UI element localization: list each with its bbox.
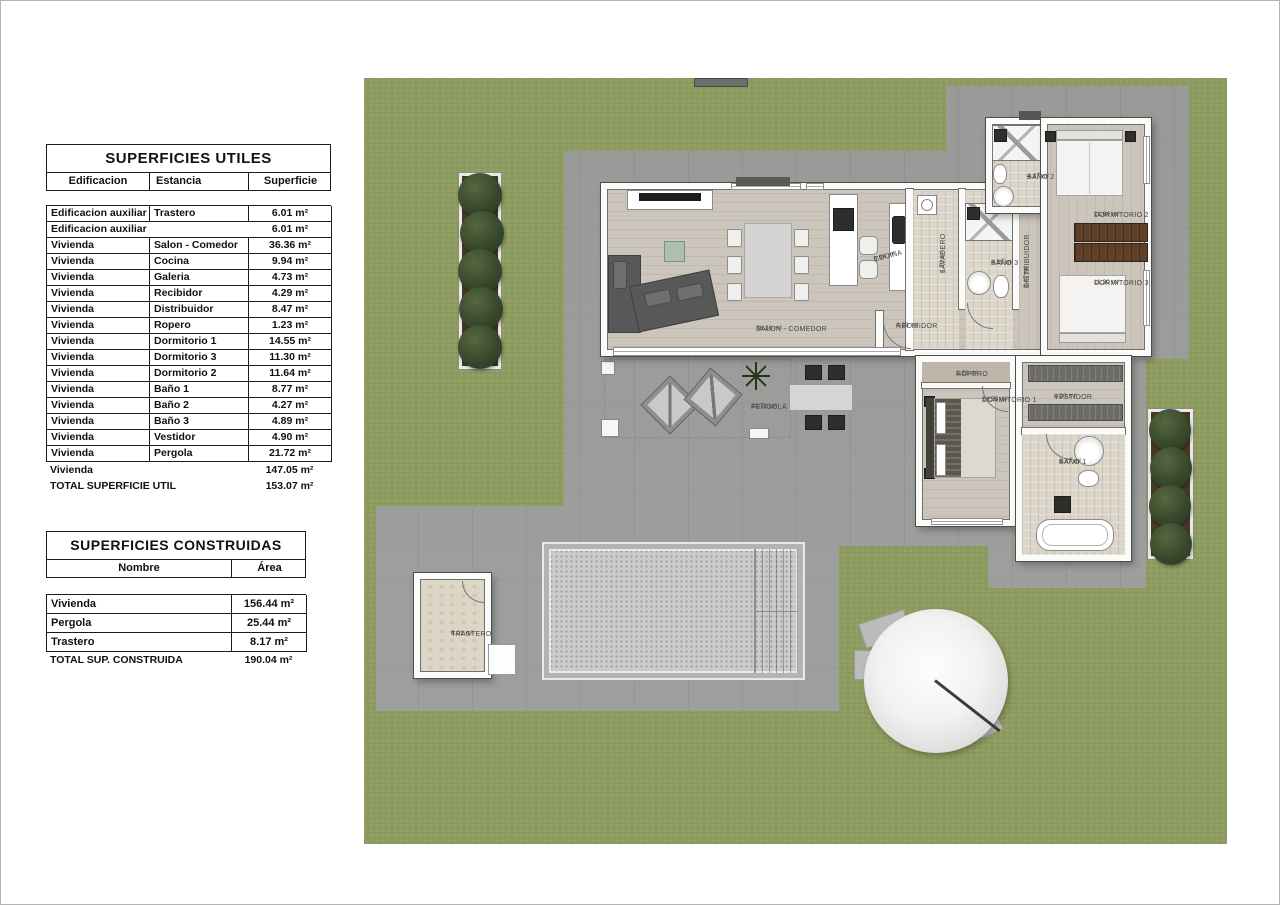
outdoor-chair: [805, 365, 822, 380]
col-header-nombre: Nombre: [47, 560, 232, 577]
window: [1143, 136, 1150, 184]
table-cell: 8.17 m²: [232, 633, 307, 652]
table-cell: Edificacion auxiliar: [47, 222, 150, 238]
table-cell: Baño 1: [150, 382, 249, 398]
outdoor-chair: [805, 415, 822, 430]
utiles-subtotal-row: Vivienda 147.05 m²: [46, 462, 331, 478]
table-cell: Dormitorio 2: [150, 366, 249, 382]
sofa: [629, 269, 719, 332]
table-cell: 4.73 m²: [249, 270, 332, 286]
table-cell: Vivienda: [47, 238, 150, 254]
tv: [639, 193, 701, 201]
bed-headboard: [1059, 333, 1126, 343]
table-cell: Vivienda: [47, 318, 150, 334]
utiles-title: SUPERFICIES UTILES: [46, 144, 331, 173]
shower-head: [994, 129, 1007, 142]
chair: [727, 283, 742, 301]
bathroom-sink: [993, 186, 1014, 207]
window: [806, 183, 824, 190]
construidas-total-row: TOTAL SUP. CONSTRUIDA 190.04 m²: [46, 652, 306, 669]
pool-step-line: [754, 611, 798, 612]
chair: [727, 256, 742, 274]
table-cell: Pergola: [150, 446, 249, 462]
bush: [1150, 523, 1192, 565]
table-cell: Ropero: [150, 318, 249, 334]
window: [931, 518, 1003, 525]
table-cell: Vivienda: [47, 254, 150, 270]
chair: [794, 229, 809, 247]
bedrooms-wing: [1041, 118, 1151, 356]
pergola-column: [601, 361, 615, 375]
bathtub-inner: [1042, 524, 1108, 546]
pergola-column: [749, 428, 769, 439]
subtotal-value: 147.05 m²: [248, 462, 331, 478]
side-table: [664, 241, 685, 262]
table-cell: Vivienda: [47, 446, 150, 462]
nightstand: [1125, 131, 1136, 142]
interior-wall: [876, 311, 883, 350]
col-header-superficie: Superficie: [249, 173, 332, 190]
table-cell: 4.29 m²: [249, 286, 332, 302]
superficies-utiles-table: SUPERFICIES UTILES Edificacion Estancia …: [46, 144, 331, 494]
table-cell: 11.64 m²: [249, 366, 332, 382]
table-cell: Dormitorio 3: [150, 350, 249, 366]
utility-pad: [488, 644, 516, 675]
sofa-cushion: [613, 261, 627, 289]
subtotal-label: Vivienda: [46, 462, 149, 478]
table-cell: Vivienda: [47, 270, 150, 286]
table-cell: 6.01 m²: [249, 206, 332, 222]
total-label: TOTAL SUP. CONSTRUIDA: [46, 652, 231, 669]
table-cell: 36.36 m²: [249, 238, 332, 254]
table-cell: Vivienda: [47, 286, 150, 302]
table-cell: Vivienda: [47, 398, 150, 414]
table-cell: Dormitorio 1: [150, 334, 249, 350]
table-cell: Recibidor: [150, 286, 249, 302]
toilet: [1078, 470, 1099, 487]
table-cell: 8.47 m²: [249, 302, 332, 318]
bush: [458, 325, 502, 369]
toilet: [993, 164, 1007, 184]
construidas-body: Vivienda156.44 m² Pergola25.44 m² Traste…: [46, 594, 306, 652]
table-cell: 21.72 m²: [249, 446, 332, 462]
table-cell: 1.23 m²: [249, 318, 332, 334]
wardrobe: [1074, 243, 1148, 262]
table-cell: Vivienda: [47, 595, 232, 614]
wardrobe: [1028, 404, 1123, 421]
outdoor-chair: [828, 365, 845, 380]
table-cell: 9.94 m²: [249, 254, 332, 270]
washer-drum: [921, 199, 933, 211]
utiles-header-row: Edificacion Estancia Superficie: [46, 173, 331, 191]
table-cell: Baño 2: [150, 398, 249, 414]
table-cell: 6.01 m²: [249, 222, 332, 238]
plant: [742, 362, 770, 390]
table-cell: 11.30 m²: [249, 350, 332, 366]
pillow: [936, 402, 946, 434]
total-value: 153.07 m²: [248, 478, 331, 494]
dorm1-block: [916, 356, 1016, 526]
table-cell: Vivienda: [47, 302, 150, 318]
trastero-block: [414, 573, 491, 678]
doormat: [1019, 111, 1041, 120]
table-cell: 4.27 m²: [249, 398, 332, 414]
toilet: [993, 275, 1009, 298]
wardrobe: [1028, 365, 1123, 382]
table-cell: 4.90 m²: [249, 430, 332, 446]
table-cell: Distribuidor: [150, 302, 249, 318]
pool: [544, 544, 803, 678]
table-cell: Vivienda: [47, 366, 150, 382]
utiles-total-row: TOTAL SUPERFICIE UTIL 153.07 m²: [46, 478, 331, 494]
outdoor-chair: [828, 415, 845, 430]
construidas-header-row: Nombre Área: [46, 560, 306, 578]
bathroom-sink: [967, 271, 991, 295]
sliding-glass-door: [613, 347, 901, 356]
dining-table: [744, 223, 792, 298]
table-cell: Edificacion auxiliar: [47, 206, 150, 222]
shower-drain: [1054, 496, 1071, 513]
construidas-title: SUPERFICIES CONSTRUIDAS: [46, 531, 306, 560]
total-label: TOTAL SUPERFICIE UTIL: [46, 478, 248, 494]
nightstand: [1045, 131, 1056, 142]
table-cell: Vivienda: [47, 334, 150, 350]
kitchen-sink: [892, 216, 906, 244]
table-cell: Vivienda: [47, 382, 150, 398]
outdoor-table: [789, 384, 853, 411]
table-cell: Trastero: [150, 206, 249, 222]
table-cell: 8.77 m²: [249, 382, 332, 398]
doormat: [736, 177, 790, 186]
table-cell: Vivienda: [47, 430, 150, 446]
bano2-block: [986, 118, 1048, 213]
col-header-estancia: Estancia: [150, 173, 249, 190]
table-cell: 4.89 m²: [249, 414, 332, 430]
table-cell: Vestidor: [150, 430, 249, 446]
bed-headboard: [926, 398, 934, 478]
chair: [794, 283, 809, 301]
table-cell: 156.44 m²: [232, 595, 307, 614]
table-cell: 14.55 m²: [249, 334, 332, 350]
shower-head: [967, 207, 980, 220]
pillow: [936, 444, 946, 476]
pergola-column: [601, 419, 619, 437]
entrance-gate: [694, 78, 748, 87]
total-value: 190.04 m²: [231, 652, 306, 669]
col-header-edificacion: Edificacion: [47, 173, 150, 190]
bed-crease: [1089, 142, 1090, 194]
wardrobe: [1074, 223, 1148, 242]
stool: [859, 236, 878, 255]
bush: [1150, 447, 1192, 489]
stove: [833, 208, 854, 231]
table-cell: Baño 3: [150, 414, 249, 430]
bed-headboard: [1056, 130, 1123, 140]
chair: [727, 229, 742, 247]
col-header-area: Área: [232, 560, 307, 577]
table-cell: Cocina: [150, 254, 249, 270]
floor-plan-sheet: SUPERFICIES UTILES Edificacion Estancia …: [0, 0, 1280, 905]
superficies-construidas-table: SUPERFICIES CONSTRUIDAS Nombre Área Vivi…: [46, 531, 306, 669]
bush: [1149, 409, 1191, 451]
table-cell: Salon - Comedor: [150, 238, 249, 254]
table-cell: Trastero: [47, 633, 232, 652]
door-arc: [462, 581, 484, 603]
table-cell: 25.44 m²: [232, 614, 307, 633]
utiles-body: Edificacion auxiliarTrastero6.01 m² Edif…: [46, 205, 331, 462]
table-cell: Vivienda: [47, 414, 150, 430]
bush: [1149, 485, 1191, 527]
site-plan: SALON - COMEDOR36.36 m² COCINA9.94 m² RE…: [364, 78, 1227, 844]
chair: [794, 256, 809, 274]
table-cell: Pergola: [47, 614, 232, 633]
table-cell: Vivienda: [47, 350, 150, 366]
table-cell: Galeria: [150, 270, 249, 286]
spacer: [149, 462, 248, 478]
table-cell: [150, 222, 249, 238]
